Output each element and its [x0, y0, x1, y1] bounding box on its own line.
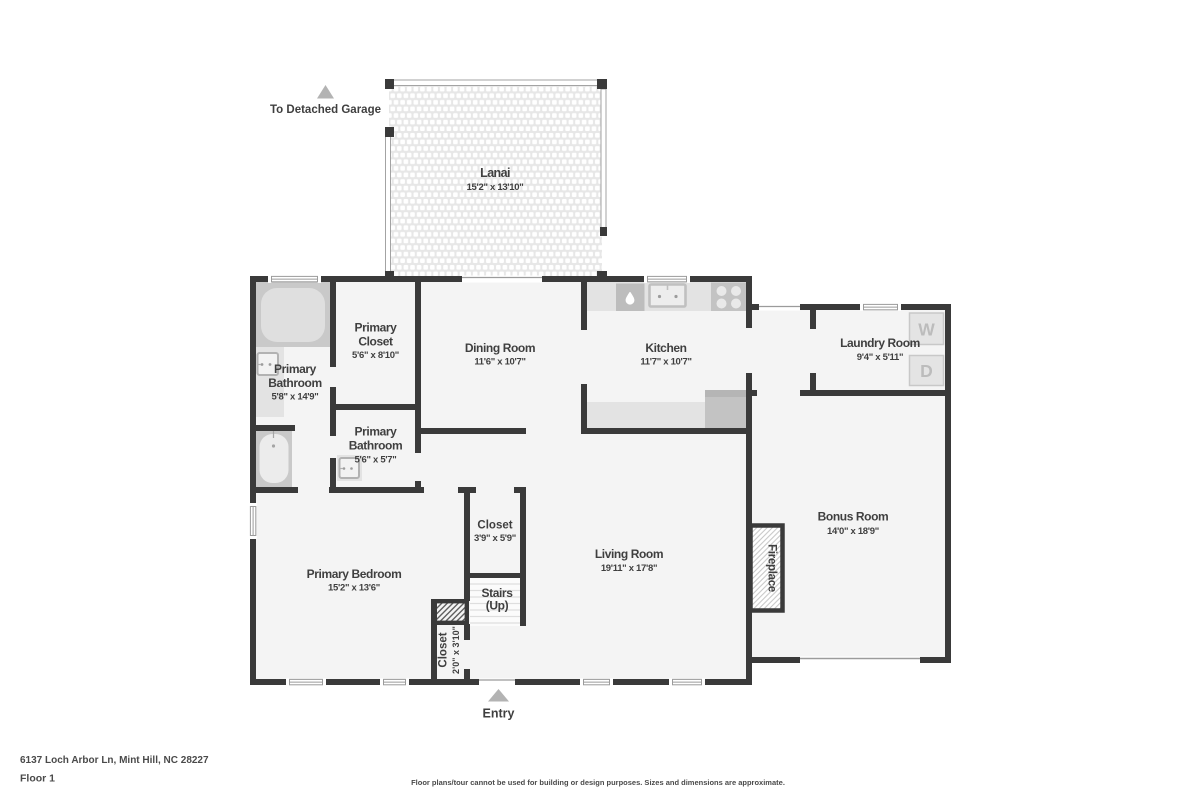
svg-text:Dining Room: Dining Room [465, 341, 535, 355]
svg-text:9'4" x 5'11": 9'4" x 5'11" [857, 352, 903, 363]
svg-text:Bonus Room: Bonus Room [818, 510, 889, 524]
svg-text:Primary: Primary [274, 362, 317, 376]
svg-text:3'9" x 5'9": 3'9" x 5'9" [474, 533, 516, 544]
svg-text:(Up): (Up) [486, 599, 509, 613]
svg-text:Laundry Room: Laundry Room [840, 336, 920, 350]
svg-text:Bathroom: Bathroom [349, 439, 402, 453]
svg-text:Primary: Primary [355, 425, 398, 439]
svg-text:Closet: Closet [438, 632, 450, 667]
svg-text:W: W [918, 320, 935, 340]
svg-text:15'2" x 13'6": 15'2" x 13'6" [328, 583, 380, 594]
svg-text:Entry: Entry [483, 707, 515, 721]
svg-text:Closet: Closet [358, 335, 393, 349]
svg-text:Primary Bedroom: Primary Bedroom [307, 567, 402, 581]
svg-text:5'6" x 8'10": 5'6" x 8'10" [352, 350, 399, 361]
svg-text:Fireplace: Fireplace [766, 544, 778, 592]
svg-text:6137 Loch Arbor Ln, Mint Hill,: 6137 Loch Arbor Ln, Mint Hill, NC 28227 [20, 755, 209, 766]
svg-text:To Detached Garage: To Detached Garage [270, 104, 381, 116]
svg-text:Bathroom: Bathroom [268, 376, 321, 390]
svg-text:2'0" x 3'10": 2'0" x 3'10" [451, 626, 461, 674]
svg-text:Living Room: Living Room [595, 547, 663, 561]
svg-text:11'6" x 10'7": 11'6" x 10'7" [474, 357, 525, 368]
svg-text:Closet: Closet [477, 520, 512, 532]
svg-text:11'7" x 10'7": 11'7" x 10'7" [640, 357, 691, 368]
svg-text:Lanai: Lanai [480, 166, 510, 180]
svg-text:D: D [920, 361, 933, 381]
svg-text:5'8" x 14'9": 5'8" x 14'9" [272, 392, 319, 403]
svg-text:Kitchen: Kitchen [645, 341, 686, 355]
svg-text:19'11" x 17'8": 19'11" x 17'8" [601, 563, 657, 574]
svg-text:5'6" x 5'7": 5'6" x 5'7" [355, 455, 397, 466]
svg-text:Floor 1: Floor 1 [20, 773, 55, 785]
svg-text:15'2" x 13'10": 15'2" x 13'10" [467, 182, 524, 193]
svg-text:Floor plans/tour cannot be use: Floor plans/tour cannot be used for buil… [411, 778, 785, 787]
svg-text:14'0" x 18'9": 14'0" x 18'9" [827, 526, 879, 537]
svg-text:Primary: Primary [355, 321, 398, 335]
